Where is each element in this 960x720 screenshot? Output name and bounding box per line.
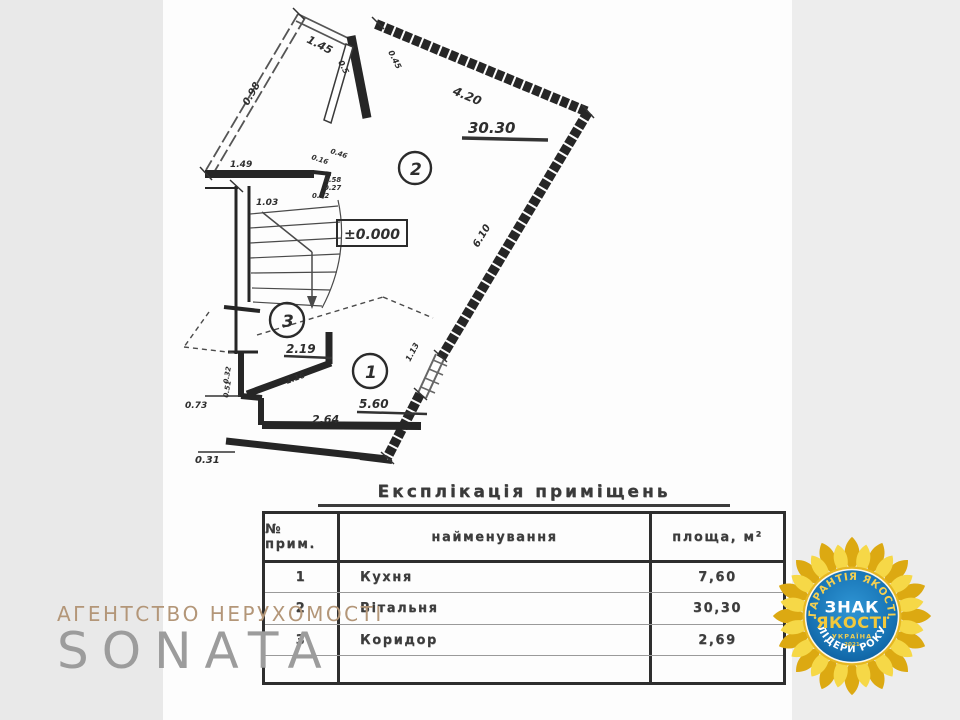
row-area bbox=[652, 656, 783, 682]
dim-0.27: 0.27 bbox=[324, 184, 341, 192]
header-area: площа, м² bbox=[652, 514, 783, 560]
staircase bbox=[250, 200, 342, 309]
row-name: Кухня bbox=[340, 563, 652, 592]
elevation-label: ±0.000 bbox=[344, 227, 400, 243]
badge-country: УКРАЇНА bbox=[832, 631, 872, 640]
table-title: Експлікація приміщень bbox=[262, 482, 786, 502]
dim-1.49: 1.49 bbox=[230, 160, 252, 170]
table-row: 1 Кухня 7,60 bbox=[265, 563, 783, 593]
row-name: Вітальня bbox=[340, 593, 652, 624]
area-30.30: 30.30 bbox=[468, 119, 515, 137]
dim-1.13: 1.13 bbox=[404, 341, 421, 363]
header-name: найменування bbox=[340, 514, 652, 560]
room-label-3: 3 bbox=[282, 312, 294, 332]
dim-0.58: 0.58 bbox=[324, 176, 341, 184]
agency-logo: АГЕНТСТВО НЕРУХОМОСТІ SONATA bbox=[57, 604, 384, 676]
area-5.60: 5.60 bbox=[359, 397, 389, 411]
dim-4.20: 4.20 bbox=[450, 83, 484, 108]
dim-1.03: 1.03 bbox=[256, 198, 278, 208]
badge-center-line2: ЯКОСТІ bbox=[816, 613, 888, 632]
room-label-1: 1 bbox=[365, 363, 377, 383]
row-area: 30,30 bbox=[652, 593, 783, 624]
room-label-2: 2 bbox=[410, 160, 422, 180]
row-num: 1 bbox=[265, 563, 340, 592]
row-name bbox=[340, 656, 652, 682]
dim-0.16: 0.16 bbox=[310, 153, 329, 166]
row-area: 2,69 bbox=[652, 625, 783, 655]
dim-2.64: 2.64 bbox=[312, 413, 339, 426]
dim-6.10: 6.10 bbox=[471, 223, 493, 250]
dim-0.73: 0.73 bbox=[185, 401, 207, 411]
header-num: № прим. bbox=[265, 514, 340, 560]
logo-name: SONATA bbox=[57, 626, 384, 676]
row-area: 7,60 bbox=[652, 563, 783, 592]
dim-2.19: 2.19 bbox=[286, 342, 316, 356]
quality-badge-icon: ГАРАНТІЯ ЯКОСТІ ЛІДЕРИ РОКУ • • ЗНАК ЯКО… bbox=[766, 530, 938, 702]
table-header-row: № прим. найменування площа, м² bbox=[265, 514, 783, 563]
dim-1.16: 1.16 bbox=[285, 371, 307, 386]
dim-0.12: 0.12 bbox=[312, 192, 329, 200]
dim-0.46: 0.46 bbox=[329, 147, 348, 160]
logo-tagline: АГЕНТСТВО НЕРУХОМОСТІ bbox=[57, 604, 384, 624]
dim-0.45: 0.45 bbox=[386, 49, 403, 71]
walls bbox=[205, 24, 588, 462]
window bbox=[418, 354, 447, 398]
row-name: Коридор bbox=[340, 625, 652, 655]
screenshot-stage: 2 3 1 ±0.000 1.45 0.5 0.45 0.98 4.20 30.… bbox=[0, 0, 960, 720]
badge-year: 2021 bbox=[844, 642, 860, 648]
dim-0.31: 0.31 bbox=[195, 455, 220, 466]
table-title-rule bbox=[318, 504, 730, 507]
